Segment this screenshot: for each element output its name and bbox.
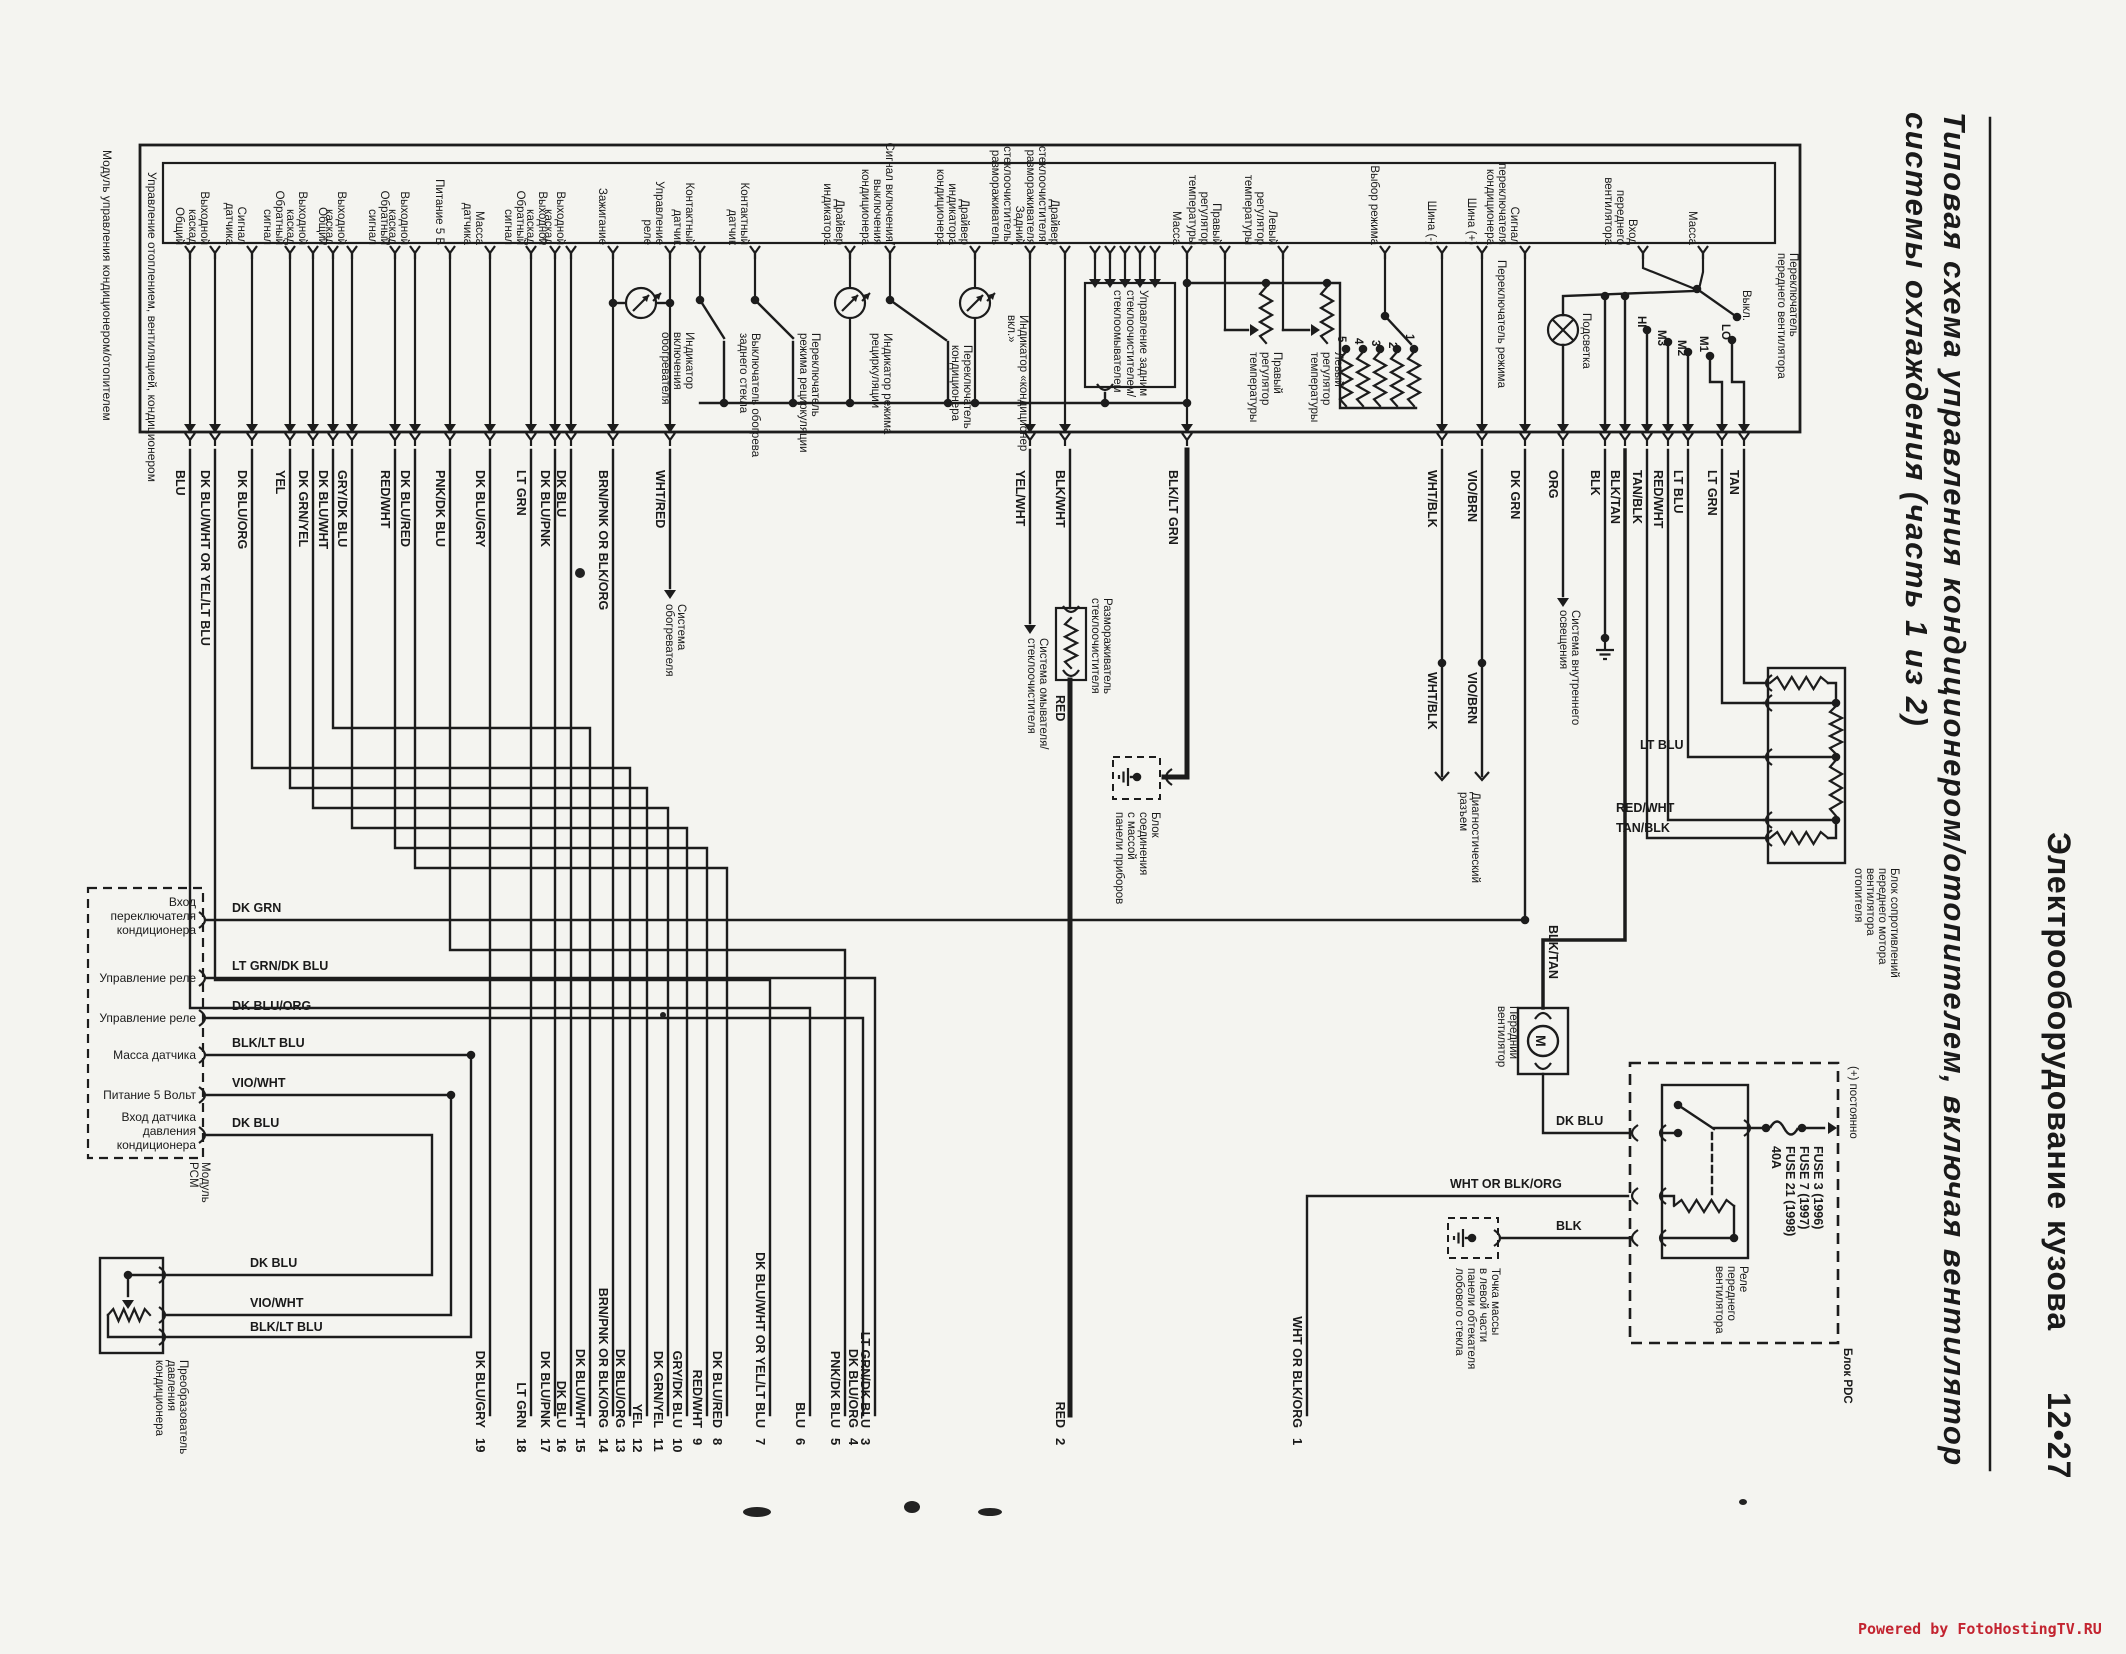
lamp-icon bbox=[1553, 320, 1573, 340]
block-res-v2 bbox=[1830, 760, 1842, 816]
diagram-label: LT GRN/DK BLU bbox=[858, 1332, 872, 1428]
connector-icon bbox=[1025, 246, 1035, 259]
diagram-label: Сигнал bbox=[1508, 207, 1520, 245]
diagram-label: 1 bbox=[1290, 1438, 1305, 1445]
wire-red-wht bbox=[395, 450, 707, 1415]
diagram-label: 2 bbox=[1053, 1438, 1068, 1445]
diagram-label: Контактный bbox=[738, 183, 750, 245]
diagram-label: Модуль bbox=[199, 1162, 211, 1203]
scan-artifact bbox=[743, 1507, 771, 1517]
diagram-label: 3 bbox=[1369, 340, 1381, 346]
diagram-label: переключателя bbox=[1496, 163, 1508, 245]
connector-icon bbox=[608, 246, 618, 259]
connector-icon bbox=[1105, 246, 1115, 259]
connector-icon bbox=[445, 433, 455, 446]
connector-icon bbox=[1717, 433, 1727, 446]
arrowhead-icon bbox=[1311, 324, 1320, 336]
diagram-label: кондиционера bbox=[117, 923, 197, 937]
diagram-label: BLK/WHT bbox=[1053, 470, 1067, 528]
connector-icon bbox=[210, 433, 220, 446]
diagram-label: Модуль управления кондиционером/отопител… bbox=[100, 150, 114, 421]
diagram-label: DK BLU/WHT bbox=[573, 1349, 587, 1429]
diagram-label: Выходной bbox=[398, 191, 410, 245]
connector-icon bbox=[1632, 1230, 1638, 1246]
junction-dot bbox=[1693, 285, 1702, 294]
diagram-label: LT GRN bbox=[1705, 470, 1719, 516]
diagram-label: 6 bbox=[793, 1438, 808, 1445]
diagram-label: BLK/LT GRN bbox=[1166, 470, 1180, 545]
diagram-label: RED/WHT bbox=[690, 1370, 704, 1429]
diagram-label: Управление задним bbox=[1137, 290, 1149, 396]
diagram-label: YEL bbox=[273, 470, 287, 495]
diagram-label: ORG bbox=[1546, 470, 1560, 498]
ground-icon bbox=[1596, 638, 1614, 659]
connector-icon bbox=[750, 246, 760, 259]
diagram-label: GRY/DK BLU bbox=[335, 470, 349, 547]
connector-icon bbox=[1638, 246, 1648, 259]
diagram-label: включения bbox=[671, 332, 683, 390]
connector-icon bbox=[1090, 246, 1100, 259]
junction-dot bbox=[1438, 659, 1447, 668]
diagram-label: Шина (+) bbox=[1465, 198, 1477, 245]
connector-icon bbox=[247, 246, 257, 259]
diagram-label: давления bbox=[143, 1124, 196, 1138]
diagram-label: температуры bbox=[1308, 352, 1320, 422]
diagram-label: 4 bbox=[1352, 338, 1364, 345]
diagram-label: 7 bbox=[753, 1438, 768, 1445]
connector-icon bbox=[1477, 433, 1487, 446]
diagram-label: PNK/DK BLU bbox=[433, 470, 447, 547]
junction-dot bbox=[1521, 916, 1530, 925]
connector-icon bbox=[1698, 246, 1708, 259]
diagram-label: HI bbox=[1635, 316, 1647, 328]
diagram-label: Управление bbox=[653, 181, 665, 245]
junction-dot bbox=[1832, 816, 1841, 825]
diagram-label: 11 bbox=[651, 1438, 666, 1452]
diagram-label: 5 bbox=[828, 1438, 843, 1445]
diagram-label: Подсветка bbox=[1580, 313, 1592, 369]
diagram-label: VIO/WHT bbox=[250, 1296, 304, 1310]
diagram-label: Задний bbox=[1013, 206, 1025, 245]
diagram-label: DK BLU/WHT bbox=[316, 470, 330, 550]
wiring-diagram: Модуль управления кондиционером/отопител… bbox=[0, 0, 2126, 1654]
fuse-icon bbox=[1770, 1122, 1798, 1135]
diagram-label: DK BLU bbox=[1556, 1114, 1603, 1128]
diagram-label: кондиционера bbox=[934, 169, 946, 246]
diagram-label: вентилятора bbox=[1713, 1266, 1725, 1334]
connector-icon bbox=[1060, 433, 1070, 446]
diagram-label: вентилятор bbox=[1495, 1006, 1507, 1067]
diagram-label: BLU bbox=[173, 470, 187, 496]
junction-dot bbox=[1381, 312, 1390, 321]
diagram-label: Индикатор bbox=[683, 332, 695, 389]
diagram-label: BLK bbox=[1556, 1219, 1582, 1233]
diagram-label: Правый bbox=[1271, 352, 1283, 394]
page-number: 12•27 bbox=[2041, 1392, 2077, 1479]
arrowhead-icon bbox=[664, 590, 676, 599]
diagram-label: DK GRN bbox=[232, 901, 281, 915]
diagram-label: Выходной bbox=[296, 191, 308, 245]
junction-dot bbox=[1323, 279, 1332, 288]
connector-icon bbox=[1477, 246, 1487, 259]
scan-artifact bbox=[1739, 1499, 1747, 1505]
junction-dot bbox=[789, 399, 798, 408]
diagram-label: RED/WHT bbox=[378, 470, 392, 529]
diagram-label: 12 bbox=[630, 1438, 645, 1452]
diagram-label: Выходной bbox=[554, 191, 566, 245]
diagram-label: DK BLU bbox=[554, 470, 568, 517]
connector-icon bbox=[347, 433, 357, 446]
mode-res-1 bbox=[1408, 352, 1420, 406]
junction-dot bbox=[1133, 773, 1142, 782]
diagram-label: DK GRN/YEL bbox=[651, 1351, 665, 1428]
left-temp-pot bbox=[1321, 287, 1333, 343]
scan-artifact bbox=[904, 1501, 920, 1513]
diagram-label: 19 bbox=[473, 1438, 488, 1452]
diagram-label: соединения bbox=[1137, 812, 1149, 875]
connector-icon bbox=[445, 246, 455, 259]
diagram-label: Шина (-) bbox=[1425, 201, 1437, 246]
junction-dot bbox=[447, 1091, 456, 1100]
diagram-label: TAN/BLK bbox=[1616, 821, 1670, 835]
diagram-title-line1: Типовая схема управления кондиционером/о… bbox=[1937, 112, 1972, 1467]
diagram-label: DK BLU bbox=[232, 1116, 279, 1130]
connector-icon bbox=[1683, 433, 1693, 446]
diagram-label: отопителя bbox=[1852, 868, 1864, 922]
connector-icon bbox=[1060, 246, 1070, 259]
connector-icon bbox=[550, 433, 560, 446]
connector-icon bbox=[1558, 433, 1568, 446]
diagram-label: DK BLU bbox=[250, 1256, 297, 1270]
diagram-label: DK GRN/YEL bbox=[296, 470, 310, 547]
connector-icon bbox=[1632, 1188, 1638, 1204]
wire-tan bbox=[1744, 450, 1764, 683]
connector-icon bbox=[308, 433, 318, 446]
connector-icon bbox=[1535, 1013, 1551, 1019]
junction-dot bbox=[846, 399, 855, 408]
diagram-label: регулятор bbox=[1198, 192, 1210, 245]
wire-pcm-vio-wht bbox=[165, 1095, 451, 1315]
diagram-label: Блок bbox=[1149, 812, 1161, 839]
diagram-label: Левый bbox=[1332, 352, 1344, 387]
diagram-label: размораживателя bbox=[1024, 150, 1036, 245]
pin-stub bbox=[1643, 252, 1695, 289]
diagram-label: 17 bbox=[538, 1438, 553, 1452]
diagram-label: Масса bbox=[473, 211, 485, 246]
diagram-label: DK BLU/ORG bbox=[846, 1349, 860, 1428]
connector-icon bbox=[1135, 246, 1145, 259]
diagram-label: стеклоочистителя bbox=[1025, 638, 1037, 734]
diagram-label: заднего стекла bbox=[737, 333, 749, 414]
connector-icon bbox=[1632, 1125, 1638, 1141]
diagram-label: Индикатор режима bbox=[881, 333, 893, 435]
connector-icon bbox=[1150, 246, 1160, 259]
defroster-element bbox=[1065, 618, 1077, 668]
connector-icon bbox=[885, 246, 895, 259]
connector-icon bbox=[328, 433, 338, 446]
diagram-label: Переключатель bbox=[961, 345, 973, 429]
diagram-label: выключения bbox=[871, 179, 883, 245]
diagram-label: TAN/BLK bbox=[1630, 470, 1644, 524]
diagram-label: DK BLU/GRY bbox=[473, 470, 487, 548]
diagram-label: DK BLU/WHT OR YEL/LT BLU bbox=[198, 470, 212, 646]
junction-dot bbox=[1832, 753, 1841, 762]
diagram-label: DK BLU/GRY bbox=[473, 1351, 487, 1429]
diagram-label: размораживатель bbox=[989, 150, 1001, 245]
connector-icon bbox=[566, 433, 576, 446]
diagram-label: YEL/WHT bbox=[1013, 470, 1027, 527]
diagram-label: переключателя bbox=[111, 909, 196, 923]
connector-icon bbox=[485, 433, 495, 446]
connector-icon bbox=[1739, 433, 1749, 446]
diagram-label: WHT/BLK bbox=[1425, 672, 1439, 730]
connector-icon bbox=[1520, 246, 1530, 259]
diagram-label: рециркуляции bbox=[869, 333, 881, 408]
diagram-label: BLU bbox=[793, 1402, 807, 1428]
diagram-label: стеклоомывателем bbox=[1111, 290, 1123, 393]
diagram-label: DK GRN bbox=[1508, 470, 1522, 519]
diagram-label: FUSE 3 (1996) bbox=[1811, 1146, 1825, 1229]
diagram-label: 9 bbox=[690, 1438, 705, 1445]
diagram-label: 13 bbox=[613, 1438, 628, 1452]
contact-m1 bbox=[1710, 356, 1722, 428]
diagram-label: Размораживатель bbox=[1101, 598, 1113, 694]
junction-dot bbox=[1262, 279, 1271, 288]
junction-dot bbox=[666, 299, 675, 308]
diagram-label: Драйвер bbox=[833, 199, 845, 245]
mode-res-3 bbox=[1374, 352, 1386, 406]
diagram-label: панели приборов bbox=[1113, 812, 1125, 904]
diagram-label: BLK/TAN bbox=[1608, 470, 1622, 524]
diagram-label: сигнал bbox=[366, 209, 378, 245]
diagram-label: освещения bbox=[1557, 610, 1569, 669]
diagram-label: DK BLU/ORG bbox=[235, 470, 249, 549]
diagram-label: DK BLU/ORG bbox=[232, 999, 311, 1013]
junction-dot bbox=[696, 296, 705, 305]
connector-icon bbox=[390, 433, 400, 446]
diagram-label: DK BLU/WHT OR YEL/LT BLU bbox=[753, 1252, 767, 1428]
connector-icon bbox=[1600, 433, 1610, 446]
diagram-label: переднего bbox=[1614, 190, 1626, 245]
diagram-label: PCM bbox=[187, 1162, 199, 1188]
connector-icon bbox=[1663, 433, 1673, 446]
diagram-label: RED bbox=[1053, 695, 1067, 721]
junction-dot bbox=[720, 399, 729, 408]
diagram-label: Диагностический bbox=[1469, 792, 1481, 883]
junction-dot bbox=[1183, 279, 1192, 288]
diagram-label: BRN/PNK OR BLK/ORG bbox=[596, 470, 610, 610]
mode-res-4 bbox=[1357, 352, 1369, 406]
diagram-label: переднего мотора bbox=[1876, 868, 1888, 965]
watermark-footer: Powered by FotoHostingTV.RU bbox=[1858, 1620, 2102, 1638]
diagram-label: Система bbox=[675, 604, 687, 651]
junction-dot bbox=[1601, 292, 1610, 301]
connector-icon bbox=[845, 246, 855, 259]
connector-icon bbox=[1535, 1063, 1551, 1069]
diagram-label: LT GRN/DK BLU bbox=[232, 959, 328, 973]
diagram-label: регулятор bbox=[1259, 352, 1271, 405]
transducer-pot bbox=[108, 1309, 150, 1321]
relay-coil bbox=[1674, 1200, 1734, 1212]
diagram-label: Точка массы bbox=[1489, 1268, 1501, 1335]
diagram-label: каскад bbox=[323, 209, 335, 245]
diagram-label: Масса bbox=[1170, 211, 1182, 246]
diagram-label: FUSE 7 (1997) bbox=[1797, 1146, 1811, 1229]
diagram-label: каскад bbox=[524, 209, 536, 245]
diagram-label: кондиционера bbox=[949, 345, 961, 422]
diagram-label: LT GRN bbox=[514, 470, 528, 516]
diagram-label: панели обтекателя bbox=[1465, 1268, 1477, 1369]
diagram-label: Реле bbox=[1737, 1266, 1749, 1292]
diagram-label: 2 bbox=[1386, 342, 1398, 348]
diagram-label: WHT OR BLK/ORG bbox=[1290, 1316, 1304, 1428]
diagram-label: 5 bbox=[1335, 336, 1347, 343]
junction-dot bbox=[1730, 1234, 1739, 1243]
junction-dot bbox=[1674, 1101, 1683, 1110]
diagram-label: Выходной bbox=[198, 191, 210, 245]
wire-gry-dkblu bbox=[352, 450, 687, 1415]
connector-icon bbox=[1380, 246, 1390, 259]
diagram-label: RED/WHT bbox=[1651, 470, 1665, 529]
diagram-label: PNK/DK BLU bbox=[828, 1351, 842, 1428]
diagram-label: 15 bbox=[573, 1438, 588, 1452]
connector-icon bbox=[308, 246, 318, 259]
diagram-label: 16 bbox=[554, 1438, 569, 1452]
connector-icon bbox=[608, 433, 618, 446]
diagram-label: Переключатель bbox=[809, 333, 821, 417]
diagram-label: Обратный bbox=[273, 191, 285, 245]
junction-dot bbox=[1468, 1234, 1477, 1243]
connector-icon bbox=[1494, 1230, 1500, 1246]
diagram-label: регулятор bbox=[1254, 192, 1266, 245]
pressure-transducer-box bbox=[100, 1258, 163, 1353]
diagram-label: WHT/BLK bbox=[1425, 470, 1439, 528]
diagram-label: VIO/WHT bbox=[232, 1076, 286, 1090]
diagram-label: Передний bbox=[1507, 1006, 1519, 1059]
connector-icon bbox=[485, 246, 495, 259]
junction-dot bbox=[609, 299, 618, 308]
sw3-arm bbox=[890, 300, 946, 340]
diagram-label: Выходной bbox=[335, 191, 347, 245]
junction-dot bbox=[751, 296, 760, 305]
junction-dot bbox=[1832, 699, 1841, 708]
block-res-v1 bbox=[1830, 706, 1842, 754]
diagram-label: Вход bbox=[1626, 219, 1638, 245]
diagram-label: Переключатель режима bbox=[1495, 260, 1507, 389]
diagram-label: RED bbox=[1053, 1402, 1067, 1428]
wire-pcm-dkblu bbox=[165, 1135, 432, 1275]
junction-dot bbox=[1621, 292, 1630, 301]
diagram-label: Переключатель bbox=[1787, 253, 1799, 337]
connector-icon bbox=[566, 246, 576, 259]
arrowhead-icon bbox=[1250, 324, 1259, 336]
diagram-label: каскад bbox=[284, 209, 296, 245]
diagram-label: Левый bbox=[1266, 210, 1278, 245]
junction-dot bbox=[1183, 399, 1192, 408]
diagram-label: Зажигание bbox=[596, 188, 608, 245]
connector-icon bbox=[185, 246, 195, 259]
diagram-label: вентилятора bbox=[1602, 177, 1614, 245]
diagram-title-line2: системы охлаждения (часть 1 из 2) bbox=[1899, 112, 1934, 727]
connector-icon bbox=[1520, 433, 1530, 446]
diagram-label: переднего вентилятора bbox=[1775, 253, 1787, 379]
diagram-label: датчика bbox=[461, 203, 473, 246]
diagram-label: DK BLU/RED bbox=[710, 1351, 724, 1428]
arrowhead-icon bbox=[1557, 598, 1569, 607]
diagram-label: в левой части bbox=[1477, 1268, 1489, 1342]
diagram-label: BLK/LT BLU bbox=[232, 1036, 305, 1050]
diagram-label: DK BLU/PNK bbox=[538, 1351, 552, 1428]
connector-icon bbox=[695, 246, 705, 259]
diagram-label: BRN/PNK OR BLK/ORG bbox=[596, 1288, 610, 1428]
connector-icon bbox=[665, 246, 675, 259]
diagram-label: Выключатель обогрева bbox=[749, 333, 761, 458]
diagram-label: Масса датчика bbox=[113, 1048, 196, 1062]
connector-icon bbox=[210, 246, 220, 259]
junction-dot bbox=[1706, 352, 1715, 361]
relay-arm bbox=[1678, 1105, 1714, 1129]
junction-dot bbox=[1101, 399, 1110, 408]
arrowhead-icon bbox=[1024, 625, 1036, 634]
connector-icon bbox=[1437, 246, 1447, 259]
diagram-label: 1 bbox=[1403, 334, 1415, 341]
connector-icon bbox=[526, 246, 536, 259]
connector-icon bbox=[410, 246, 420, 259]
connector-icon bbox=[1120, 246, 1130, 259]
diagram-label: температуры bbox=[1186, 175, 1198, 245]
diagram-label: LT GRN bbox=[514, 1382, 528, 1428]
diagram-label: BLK/TAN bbox=[1546, 925, 1560, 979]
diagram-label: кондиционера bbox=[859, 169, 871, 246]
scan-artifact bbox=[660, 1012, 666, 1018]
connector-icon bbox=[247, 433, 257, 446]
connector-icon bbox=[1220, 246, 1230, 259]
diagram-label: стеклоочиститель/ bbox=[1001, 146, 1013, 246]
connector-icon bbox=[665, 433, 675, 446]
connector-icon bbox=[1642, 433, 1652, 446]
diagram-label: каскад bbox=[542, 209, 554, 245]
diagram-label: RED/WHT bbox=[1616, 801, 1675, 815]
connector-icon bbox=[970, 246, 980, 259]
arrowhead-icon bbox=[1828, 1122, 1837, 1134]
diagram-label: LT BLU bbox=[1640, 738, 1684, 752]
block-res-top bbox=[1770, 677, 1828, 689]
wire-blu bbox=[190, 450, 810, 1415]
diagram-label: реле bbox=[641, 219, 653, 245]
connector-icon bbox=[1182, 246, 1192, 259]
diagram-label: VIO/BRN bbox=[1465, 470, 1479, 522]
diagram-label: обогревателя bbox=[659, 332, 671, 405]
connector-icon bbox=[285, 246, 295, 259]
diagram-label: разъем bbox=[1457, 792, 1469, 831]
connector-icon bbox=[1620, 433, 1630, 446]
diagram-label: Вход датчика bbox=[121, 1110, 196, 1124]
connector-icon bbox=[285, 433, 295, 446]
diagram-label: вкл.» bbox=[1005, 315, 1017, 343]
right-temp-pot bbox=[1260, 287, 1272, 343]
ground-icon bbox=[1454, 1229, 1463, 1247]
scan-artifact bbox=[978, 1508, 1002, 1516]
diagram-label: обогревателя bbox=[663, 604, 675, 677]
diagram-label: Управление отоплением, вентиляцией, конд… bbox=[145, 172, 159, 482]
diagram-label: Индикатор «кондиционер bbox=[1017, 315, 1029, 451]
scanned-wiring-diagram-page: Модуль управления кондиционером/отопител… bbox=[0, 0, 2126, 1654]
junction-dot bbox=[124, 1271, 133, 1280]
diagram-label: M2 bbox=[1675, 340, 1687, 356]
diagram-label: Питание 5 Вольт bbox=[103, 1088, 196, 1102]
diagram-label: кондиционера bbox=[1484, 169, 1496, 246]
diagram-label: Общий bbox=[173, 207, 185, 245]
